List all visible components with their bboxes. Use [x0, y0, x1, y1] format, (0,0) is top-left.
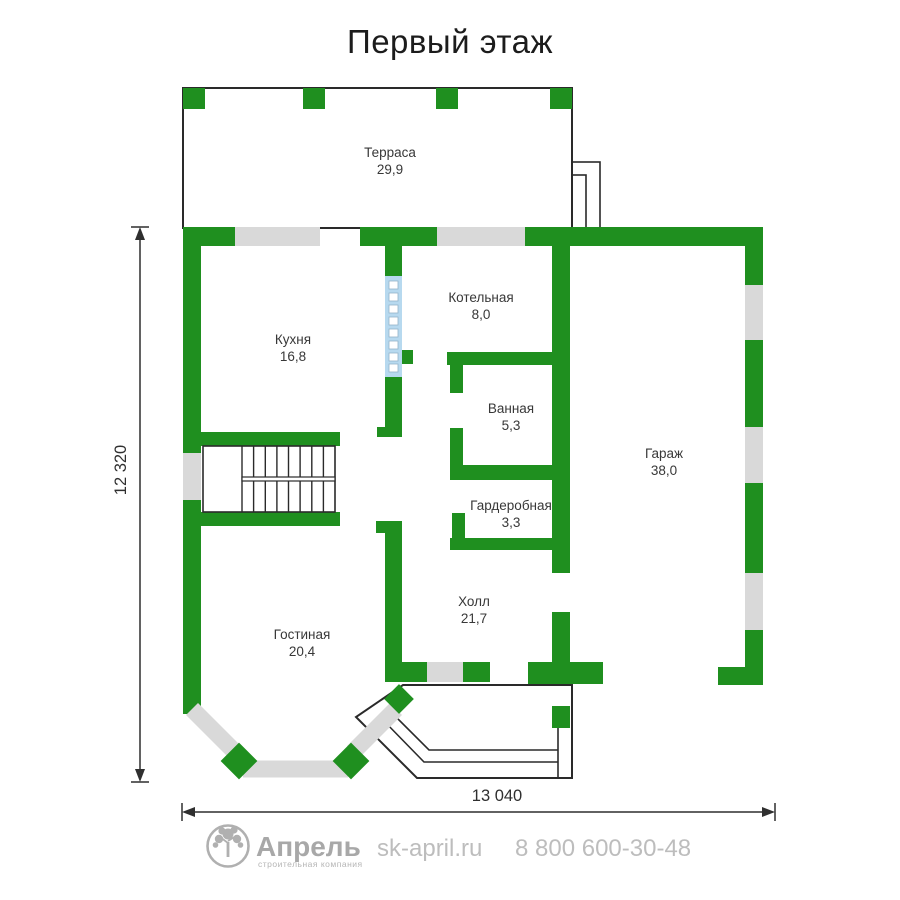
page-title: Первый этаж: [347, 23, 553, 60]
room-label-kitchen: Кухня: [275, 332, 311, 347]
wall: [718, 667, 763, 685]
porch-post: [552, 706, 570, 728]
wall: [183, 500, 201, 714]
wall: [450, 538, 553, 550]
room-area-garage: 38,0: [651, 463, 677, 478]
wall: [528, 662, 603, 684]
glass-block-strip: [385, 276, 402, 377]
bay-window: [192, 684, 414, 779]
window: [745, 285, 763, 340]
room-area-wardrobe: 3,3: [502, 515, 521, 530]
room-area-kitchen: 16,8: [280, 349, 306, 364]
wall: [447, 352, 570, 365]
room-label-living: Гостиная: [274, 627, 331, 642]
wall: [201, 432, 340, 446]
wall: [745, 340, 763, 427]
company-logo-tree-icon: [208, 826, 249, 867]
wall: [463, 662, 490, 682]
wall: [183, 227, 201, 453]
brand-tagline: строительная компания: [258, 859, 363, 869]
room-area-living: 20,4: [289, 644, 316, 659]
floor-plan-drawing: Терраса 29,9 Кухня 16,8 Котельная 8,0 Ва…: [0, 0, 900, 900]
room-area-boiler: 8,0: [472, 307, 491, 322]
wall: [376, 521, 385, 533]
arrow-left-icon: [182, 807, 195, 817]
window: [427, 662, 463, 682]
terrace-post: [303, 88, 325, 109]
dimension-width-value: 13 040: [472, 787, 522, 805]
room-label-garage: Гараж: [645, 446, 683, 461]
dimension-horizontal: 13 040: [182, 787, 775, 821]
terrace-post: [436, 88, 458, 109]
wall: [552, 246, 570, 573]
wall: [385, 662, 427, 682]
wall: [385, 377, 402, 437]
wall: [745, 483, 763, 573]
room-area-terrace: 29,9: [377, 162, 403, 177]
floor-plan-page: Терраса 29,9 Кухня 16,8 Котельная 8,0 Ва…: [0, 0, 900, 900]
wall: [450, 365, 463, 393]
brand-name: Апрель: [256, 831, 361, 862]
wall: [525, 227, 763, 246]
room-label-bathroom: Ванная: [488, 401, 534, 416]
wall: [377, 427, 385, 437]
wall: [360, 227, 437, 246]
terrace-post: [183, 88, 205, 109]
wall: [201, 512, 340, 526]
room-area-bathroom: 5,3: [502, 418, 521, 433]
room-label-terrace: Терраса: [364, 145, 416, 160]
bay-window-glass: [192, 709, 235, 752]
room-label-hall: Холл: [458, 594, 490, 609]
glass-block-partition: [385, 276, 402, 377]
room-label-boiler: Котельная: [448, 290, 513, 305]
website-link[interactable]: sk-april.ru: [377, 835, 482, 862]
room-area-hall: 21,7: [461, 611, 487, 626]
window: [745, 427, 763, 483]
arrow-down-icon: [135, 769, 145, 782]
staircase: [201, 432, 340, 526]
wall: [385, 521, 402, 662]
dimension-vertical: 12 320: [112, 227, 149, 782]
room-label-wardrobe: Гардеробная: [470, 498, 552, 513]
dimension-height-value: 12 320: [112, 445, 130, 495]
window: [183, 453, 201, 500]
window: [745, 573, 763, 630]
arrow-right-icon: [762, 807, 775, 817]
wall: [385, 246, 402, 276]
wall: [745, 227, 763, 285]
arrow-up-icon: [135, 227, 145, 240]
footer: Апрель строительная компания sk-april.ru…: [208, 826, 692, 870]
stair-mid-landing-line: [242, 477, 335, 481]
wall: [450, 465, 553, 480]
terrace-post: [550, 88, 572, 109]
phone-number: 8 800 600-30-48: [515, 835, 691, 862]
terrace-steps-inner: [572, 175, 586, 228]
window: [235, 227, 320, 246]
wall: [552, 612, 570, 664]
window: [437, 227, 525, 246]
